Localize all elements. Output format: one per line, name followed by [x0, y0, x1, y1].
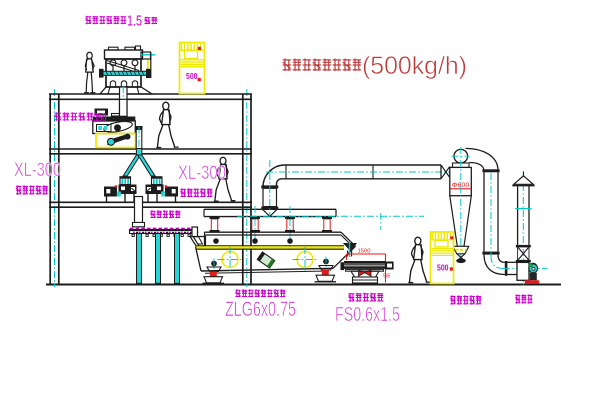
svg-text:545: 545: [383, 274, 390, 280]
svg-text:350: 350: [94, 111, 107, 125]
svg-text:FS0.6x1.5: FS0.6x1.5: [335, 304, 400, 326]
svg-text:1500: 1500: [358, 249, 371, 255]
svg-text:XL-300: XL-300: [178, 163, 226, 184]
svg-text:XL-300: XL-300: [14, 160, 61, 181]
svg-text:1.5: 1.5: [127, 14, 142, 30]
svg-text:500: 500: [186, 72, 198, 81]
svg-text:ZLG6x0.75: ZLG6x0.75: [225, 298, 296, 321]
svg-text:500: 500: [437, 264, 449, 273]
svg-text:(500kg/h): (500kg/h): [362, 52, 467, 80]
